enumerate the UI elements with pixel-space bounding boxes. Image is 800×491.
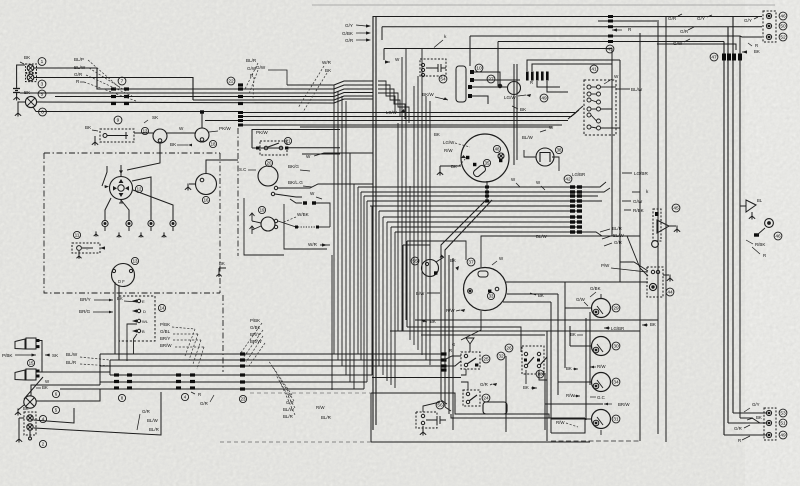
- svg-text:BK: BK: [434, 132, 440, 137]
- svg-text:BK: BK: [754, 49, 760, 54]
- svg-text:R: R: [755, 43, 758, 48]
- svg-text:BL/R: BL/R: [321, 415, 331, 420]
- svg-text:W/BK: W/BK: [297, 212, 310, 217]
- svg-text:56: 56: [437, 403, 443, 409]
- svg-text:G/W: G/W: [576, 297, 586, 302]
- svg-text:30: 30: [613, 344, 619, 350]
- svg-text:G/R: G/R: [345, 38, 354, 43]
- svg-text:LG/BR: LG/BR: [572, 172, 585, 177]
- svg-text:49: 49: [541, 96, 547, 102]
- svg-text:37: 37: [468, 260, 474, 266]
- svg-text:BR/W: BR/W: [250, 339, 262, 344]
- svg-text:G/R: G/R: [74, 72, 83, 77]
- svg-text:BL: BL: [757, 198, 763, 203]
- svg-text:G/BK: G/BK: [342, 31, 354, 36]
- svg-text:BK/L.G: BK/L.G: [288, 180, 303, 185]
- svg-text:W: W: [179, 126, 184, 131]
- svg-text:25: 25: [483, 357, 489, 363]
- svg-text:R/BK: R/BK: [755, 242, 765, 247]
- svg-text:31: 31: [613, 417, 619, 423]
- svg-text:S.C: S.C: [239, 167, 246, 172]
- svg-text:G/R: G/R: [668, 16, 677, 21]
- svg-text:29: 29: [613, 306, 619, 312]
- svg-text:P/BK: P/BK: [2, 353, 13, 358]
- svg-text:LG/BR: LG/BR: [611, 326, 624, 331]
- svg-text:11: 11: [75, 233, 80, 238]
- svg-text:BL/W: BL/W: [147, 418, 159, 423]
- svg-text:P/BK: P/BK: [250, 318, 260, 323]
- svg-text:50: 50: [780, 24, 786, 30]
- svg-text:R/BK: R/BK: [633, 208, 645, 213]
- svg-text:R/W: R/W: [566, 393, 575, 398]
- svg-text:BK/G: BK/G: [288, 164, 299, 169]
- svg-text:23: 23: [241, 397, 246, 402]
- svg-text:R: R: [198, 392, 201, 397]
- svg-text:BR/W: BR/W: [618, 402, 630, 407]
- svg-text:BR/G: BR/G: [79, 309, 91, 314]
- svg-text:35: 35: [485, 161, 490, 166]
- svg-text:32: 32: [498, 354, 504, 360]
- svg-text:W/R: W/R: [322, 60, 332, 65]
- svg-text:BL/W: BL/W: [613, 233, 625, 238]
- svg-text:G/BL: G/BL: [250, 325, 261, 330]
- svg-text:13: 13: [133, 259, 138, 264]
- svg-text:W: W: [614, 74, 619, 79]
- svg-text:W: W: [310, 191, 315, 196]
- svg-text:G/R: G/R: [142, 409, 150, 414]
- svg-text:3: 3: [41, 82, 44, 88]
- svg-text:G/Y: G/Y: [744, 18, 752, 23]
- svg-text:20: 20: [267, 161, 272, 166]
- svg-text:PK/W: PK/W: [256, 130, 268, 135]
- svg-text:53: 53: [780, 411, 786, 417]
- svg-text:BK: BK: [523, 385, 529, 390]
- svg-text:G/Y: G/Y: [697, 16, 705, 21]
- svg-text:LG/W: LG/W: [443, 140, 455, 145]
- svg-text:BR/W: BR/W: [160, 343, 172, 348]
- svg-text:BK: BK: [24, 55, 31, 60]
- svg-text:38: 38: [557, 148, 562, 153]
- svg-text:BK: BK: [570, 332, 576, 337]
- svg-text:BK: BK: [117, 296, 123, 301]
- svg-text:49: 49: [780, 433, 786, 439]
- svg-text:BL/R: BL/R: [66, 360, 77, 365]
- svg-text:R: R: [763, 253, 766, 258]
- svg-text:6: 6: [41, 110, 44, 116]
- svg-text:33: 33: [489, 294, 494, 299]
- svg-text:BL/P: BL/P: [74, 57, 84, 62]
- svg-text:BL/R: BL/R: [246, 58, 257, 63]
- svg-text:WL: WL: [142, 319, 149, 324]
- svg-text:W/R: W/R: [308, 242, 318, 247]
- svg-text:BL/R: BL/R: [612, 226, 622, 231]
- svg-text:W: W: [395, 57, 400, 62]
- svg-text:18: 18: [211, 142, 216, 147]
- svg-text:BK: BK: [520, 107, 527, 112]
- svg-text:BK/W: BK/W: [422, 92, 434, 97]
- svg-text:BK: BK: [756, 415, 762, 420]
- svg-text:G.C: G.C: [597, 395, 605, 400]
- svg-text:W: W: [306, 154, 311, 159]
- svg-text:14: 14: [160, 306, 165, 311]
- svg-text:BL/W: BL/W: [66, 352, 78, 357]
- svg-text:R/W: R/W: [316, 405, 325, 410]
- svg-text:BL/W: BL/W: [74, 65, 86, 70]
- svg-text:G/R: G/R: [680, 29, 689, 34]
- svg-text:47: 47: [711, 55, 717, 61]
- svg-text:45: 45: [673, 206, 679, 212]
- svg-text:G/W: G/W: [633, 199, 643, 204]
- svg-text:R: R: [449, 348, 452, 353]
- svg-text:D F: D F: [118, 279, 125, 284]
- svg-text:R/W: R/W: [556, 420, 565, 425]
- svg-text:12: 12: [137, 187, 142, 192]
- svg-text:55: 55: [412, 259, 418, 265]
- svg-text:BK: BK: [170, 142, 177, 147]
- svg-text:SK: SK: [152, 115, 159, 120]
- svg-text:LG/W: LG/W: [504, 95, 516, 100]
- svg-text:LG/BR: LG/BR: [634, 171, 648, 176]
- svg-text:48: 48: [495, 147, 500, 152]
- svg-text:BR/Y: BR/Y: [250, 332, 260, 337]
- svg-text:R: R: [738, 438, 741, 443]
- svg-text:34: 34: [613, 380, 619, 386]
- svg-text:G/BL: G/BL: [160, 329, 171, 334]
- svg-text:G/BK: G/BK: [590, 286, 601, 291]
- svg-text:BK: BK: [23, 406, 29, 411]
- svg-text:G: G: [452, 342, 455, 347]
- svg-text:LG/W: LG/W: [386, 110, 397, 115]
- svg-text:BK: BK: [451, 164, 457, 169]
- svg-text:15: 15: [29, 361, 34, 366]
- svg-text:41: 41: [591, 67, 597, 73]
- svg-text:9: 9: [117, 118, 120, 124]
- svg-text:28: 28: [537, 372, 543, 378]
- svg-text:42: 42: [565, 177, 571, 183]
- svg-text:G/W: G/W: [673, 41, 683, 46]
- svg-text:21: 21: [286, 139, 291, 144]
- svg-text:1: 1: [41, 59, 44, 65]
- svg-text:46: 46: [780, 14, 786, 20]
- svg-text:G/R: G/R: [734, 426, 742, 431]
- svg-text:24: 24: [483, 396, 489, 402]
- svg-text:G/W: G/W: [256, 65, 266, 70]
- svg-text:BK: BK: [566, 366, 572, 371]
- svg-text:BK: BK: [42, 385, 48, 390]
- svg-text:R/W: R/W: [444, 148, 453, 153]
- svg-text:54: 54: [440, 77, 446, 83]
- svg-text:BL/R: BL/R: [283, 414, 293, 419]
- svg-text:22: 22: [228, 79, 234, 85]
- svg-text:B/W: B/W: [416, 291, 425, 296]
- svg-text:G/R: G/R: [480, 382, 488, 387]
- svg-text:10: 10: [476, 66, 482, 72]
- svg-text:G/R: G/R: [200, 401, 208, 406]
- svg-text:D: D: [143, 309, 146, 314]
- svg-text:46: 46: [775, 234, 781, 240]
- svg-text:BK: BK: [650, 322, 656, 327]
- svg-text:52: 52: [780, 35, 786, 41]
- svg-text:P/BK: P/BK: [160, 322, 170, 327]
- svg-text:BK: BK: [219, 261, 225, 266]
- svg-text:BL/W: BL/W: [631, 87, 643, 92]
- svg-text:PK/W: PK/W: [219, 126, 231, 131]
- svg-text:BL/R: BL/R: [149, 427, 159, 432]
- svg-text:16: 16: [204, 198, 209, 203]
- svg-text:7: 7: [121, 79, 124, 85]
- svg-text:BK: BK: [325, 68, 332, 73]
- svg-text:51: 51: [780, 421, 786, 427]
- svg-text:R: R: [530, 80, 533, 85]
- svg-text:BL/W: BL/W: [536, 234, 548, 239]
- svg-text:R/W: R/W: [597, 364, 606, 369]
- svg-text:BR/Y: BR/Y: [160, 336, 170, 341]
- svg-text:G/Y: G/Y: [752, 402, 760, 407]
- svg-text:44: 44: [667, 290, 673, 296]
- svg-text:R/W: R/W: [446, 308, 455, 313]
- svg-text:E: E: [142, 299, 145, 304]
- svg-text:B: B: [142, 329, 145, 334]
- svg-text:BK: BK: [85, 125, 92, 130]
- svg-text:BL/W: BL/W: [522, 135, 534, 140]
- svg-text:G/R: G/R: [614, 240, 622, 245]
- svg-text:BR/Y: BR/Y: [80, 297, 91, 302]
- svg-text:26: 26: [506, 346, 512, 352]
- svg-text:P/W: P/W: [601, 263, 610, 268]
- svg-text:SK: SK: [52, 353, 59, 358]
- svg-text:G/Y: G/Y: [345, 23, 353, 28]
- svg-text:19: 19: [260, 208, 265, 213]
